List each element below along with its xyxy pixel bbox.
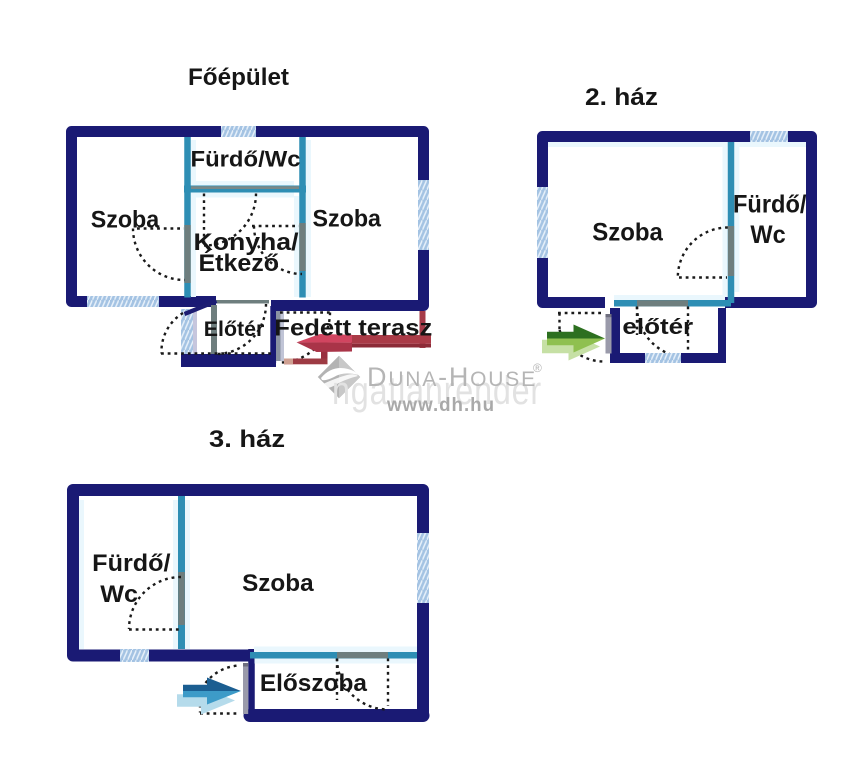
svg-text:www.dh.hu: www.dh.hu — [386, 395, 495, 416]
svg-text:3. ház: 3. ház — [209, 426, 285, 453]
svg-text:Fedett terasz: Fedett terasz — [274, 315, 432, 341]
svg-text:Előszoba: Előszoba — [260, 670, 368, 697]
svg-text:Főépület: Főépület — [188, 64, 289, 91]
svg-text:®: ® — [533, 361, 542, 375]
svg-text:Wc: Wc — [750, 221, 785, 249]
svg-text:Étkező: Étkező — [199, 249, 280, 277]
svg-text:2. ház: 2. ház — [585, 84, 658, 111]
svg-text:Szoba: Szoba — [592, 219, 664, 247]
svg-text:Fürdő/: Fürdő/ — [92, 550, 171, 577]
svg-text:Fürdő/Wc: Fürdő/Wc — [191, 147, 301, 172]
svg-text:Szoba: Szoba — [91, 207, 160, 234]
svg-text:Szoba: Szoba — [242, 570, 314, 597]
svg-text:Wc: Wc — [100, 581, 138, 608]
svg-text:Előtér: Előtér — [204, 318, 265, 341]
svg-text:Szoba: Szoba — [313, 206, 382, 233]
svg-text:Fürdő/: Fürdő/ — [733, 191, 807, 219]
svg-text:előtér: előtér — [622, 314, 693, 339]
